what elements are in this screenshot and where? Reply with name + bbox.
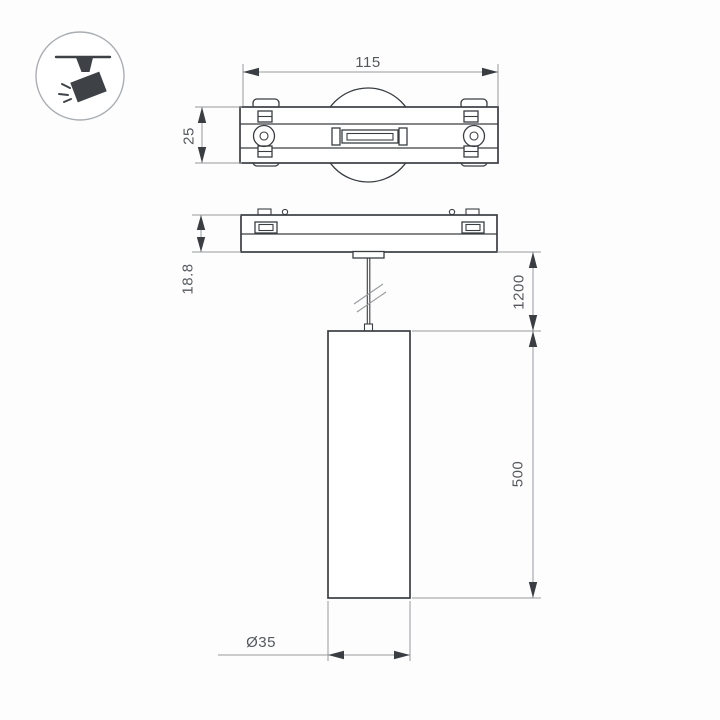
dim-track-width: 25 — [180, 107, 242, 163]
dim-arrow — [328, 651, 344, 659]
dim-arrow — [197, 215, 205, 230]
dim-label-track-height: 18.8 — [179, 263, 196, 294]
cable-gland-block — [353, 252, 384, 259]
dim-arrow — [529, 315, 537, 331]
dim-arrow — [198, 147, 206, 163]
track-connector-top-view — [240, 88, 498, 182]
dim-arrow — [482, 68, 498, 76]
suspension-cable — [367, 258, 370, 325]
dim-arrow — [529, 331, 537, 347]
dim-arrow — [198, 107, 206, 123]
track-body-top — [240, 107, 498, 163]
dim-label-suspension-length: 1200 — [510, 274, 527, 309]
dim-track-height: 18.8 — [179, 215, 241, 295]
track-connector-side-view — [241, 209, 497, 332]
pendant-light-dimension-drawing: 115 25 — [0, 0, 720, 720]
dim-label-pendant-diameter: Ø35 — [246, 634, 276, 651]
dim-pendant-height: 500 — [412, 331, 541, 598]
dim-arrow — [529, 252, 537, 268]
pendant-cylinder-body — [328, 331, 410, 598]
screw-bump — [282, 209, 287, 214]
dim-label-track-length: 115 — [355, 54, 380, 71]
technical-drawing-page: 115 25 — [0, 0, 720, 720]
dim-arrow — [394, 651, 410, 659]
dim-suspension-length: 1200 — [412, 252, 541, 331]
track-spotlight-badge — [36, 32, 124, 120]
dim-arrow — [197, 237, 205, 252]
dim-label-pendant-height: 500 — [509, 461, 526, 488]
dim-arrow — [243, 68, 259, 76]
dim-arrow — [529, 582, 537, 598]
screw-bump — [449, 209, 454, 214]
badge-circle — [36, 32, 124, 120]
dim-label-track-width: 25 — [180, 127, 197, 145]
dim-pendant-diameter: Ø35 — [218, 601, 410, 661]
